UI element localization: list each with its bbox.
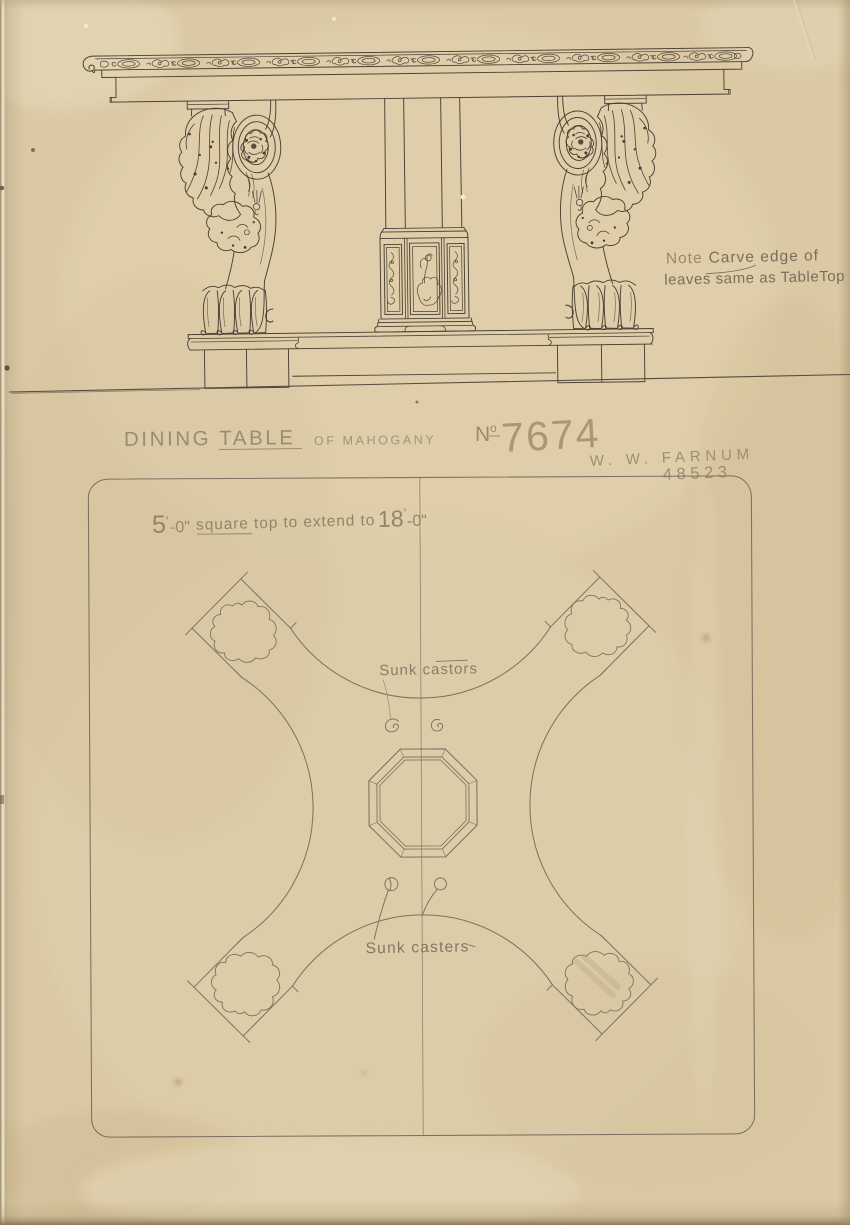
svg-text:Sunk casters: Sunk casters (366, 938, 470, 957)
svg-text:OF MAHOGANY: OF MAHOGANY (314, 433, 436, 448)
svg-text:leaves same as TableTop: leaves same as TableTop (664, 268, 845, 289)
svg-text:Sunk castors: Sunk castors (379, 660, 478, 679)
svg-text:square top to extend to: square top to extend to (196, 512, 376, 534)
svg-text:NoteCarve edge of: NoteCarve edge of (666, 247, 819, 267)
svg-text:5: 5 (152, 511, 167, 539)
svg-text:': ' (166, 513, 169, 528)
svg-text:48523: 48523 (662, 463, 732, 484)
svg-text:DINING TABLE: DINING TABLE (124, 426, 296, 451)
svg-text:18: 18 (378, 505, 404, 532)
svg-text:N: N (475, 423, 490, 446)
svg-text:-0": -0" (407, 513, 427, 531)
svg-text:7674: 7674 (500, 410, 601, 461)
svg-text:o: o (490, 421, 497, 435)
